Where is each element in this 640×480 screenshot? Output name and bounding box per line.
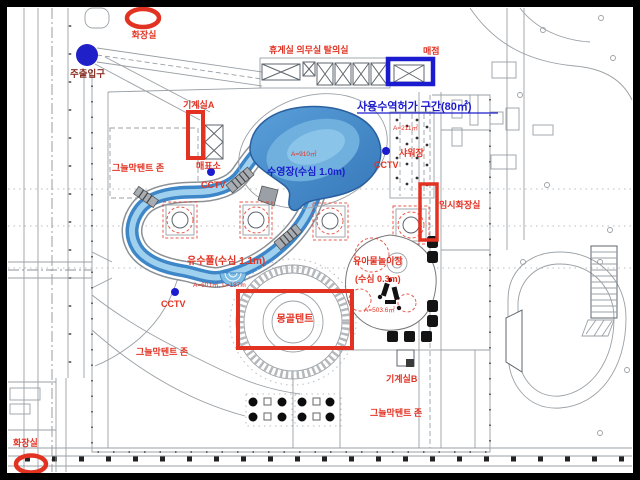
- label-shade-tent-right: 그늘막텐트 존: [370, 407, 422, 418]
- label-temporary-toilet: 임시화장실: [439, 199, 480, 210]
- site-plan-drawing: 화장실 주출입구 기계실A 그늘막텐트 존 매표소 CCTV 휴게실 의무실 탈…: [0, 0, 640, 480]
- label-main-entrance: 주출입구: [70, 68, 105, 80]
- cctv-marker-shower: [382, 147, 390, 155]
- label-kids-pool-size: A=503.6㎡: [364, 305, 395, 314]
- label-machine-room-a: 기계실A: [183, 99, 215, 110]
- label-cctv-3: CCTV: [161, 299, 186, 309]
- site-plan-screenshot: 화장실 주출입구 기계실A 그늘막텐트 존 매표소 CCTV 휴게실 의무실 탈…: [0, 0, 640, 480]
- label-facility-row: 휴게실 의무실 탈의실: [269, 44, 349, 55]
- label-shade-tent-bottom: 그늘막텐트 존: [136, 346, 188, 357]
- label-permit-zone: 사용수역허가 구간(80㎡): [357, 99, 472, 113]
- label-kids-pool: 유아물놀이장: [353, 255, 403, 266]
- label-main-pool: 수영장(수심 1.0m): [267, 165, 345, 178]
- label-ticket-booth: 매표소: [196, 160, 222, 171]
- cctv-marker-south: [171, 288, 179, 296]
- main-entrance-marker: [76, 44, 98, 66]
- label-machine-room-b: 기계실B: [386, 373, 418, 384]
- label-toilet-top: 화장실: [132, 29, 157, 40]
- label-cctv-1: CCTV: [201, 180, 226, 190]
- label-lazy-river: 유수풀(수심 1.1m): [187, 254, 265, 267]
- label-shower-size: A=211㎡: [393, 123, 418, 132]
- label-pool-size: A=910㎡: [291, 149, 317, 158]
- label-shower: 샤워장: [399, 147, 425, 158]
- machine-room-b-building: [397, 350, 414, 367]
- label-lazy-river-size: A=601㎡, L=187m: [193, 280, 246, 289]
- label-shade-tent-left: 그늘막텐트 존: [112, 162, 164, 173]
- label-cctv-2: CCTV: [374, 160, 399, 170]
- label-snack-bar: 매점: [423, 45, 440, 56]
- label-mongolian-tent: 몽골텐트: [277, 312, 314, 325]
- label-kids-pool-depth: (수심 0.3m): [355, 273, 401, 284]
- label-toilet-bottom: 화장실: [13, 437, 38, 448]
